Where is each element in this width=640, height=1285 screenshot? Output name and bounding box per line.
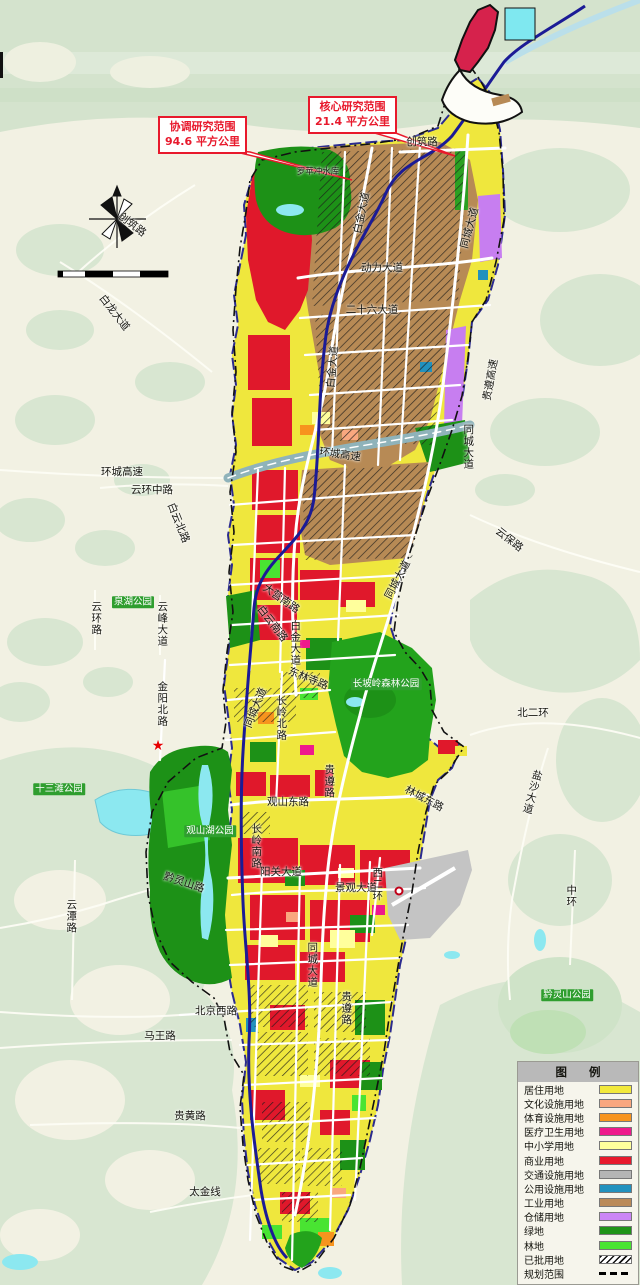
legend-item-label: 中小学用地 [524,1138,574,1153]
callout-line2: 94.6 平方公里 [165,135,240,150]
legend-item-label: 林地 [524,1238,544,1253]
legend-title: 图 例 [518,1062,638,1082]
legend-item-label: 工业用地 [524,1195,564,1210]
legend-item-swatch [599,1099,632,1108]
legend-item-label: 公用设施用地 [524,1181,584,1196]
callout-coordination-scope: 协调研究范围 94.6 平方公里 [158,116,247,154]
callout-line1: 协调研究范围 [165,120,240,135]
legend-item-swatch [599,1170,632,1179]
legend-row: 中小学用地 [518,1139,638,1153]
legend-row: 公用设施用地 [518,1181,638,1195]
legend-row: 已批用地 [518,1252,638,1266]
legend-item-label: 仓储用地 [524,1209,564,1224]
legend-row: 居住用地 [518,1082,638,1096]
callout-line1: 核心研究范围 [315,100,390,115]
legend-item-swatch [599,1113,632,1122]
legend-item-swatch [599,1156,632,1165]
legend-item-swatch [599,1085,632,1094]
legend-item-label: 文化设施用地 [524,1096,584,1111]
legend-item-swatch [599,1141,632,1150]
scale-bar [58,271,168,277]
legend-row: 规划范围 [518,1266,638,1280]
legend-item-label: 已批用地 [524,1252,564,1267]
legend-item-label: 医疗卫生用地 [524,1124,584,1139]
legend-item-swatch [599,1241,632,1250]
legend-row: 交通设施用地 [518,1167,638,1181]
legend-row: 医疗卫生用地 [518,1125,638,1139]
legend-item-swatch [599,1198,632,1207]
legend-item-label: 交通设施用地 [524,1167,584,1182]
train-station-icon [395,887,404,896]
legend-item-label: 体育设施用地 [524,1110,584,1125]
legend-item-label: 商业用地 [524,1153,564,1168]
legend-item-swatch [599,1127,632,1136]
callout-core-scope: 核心研究范围 21.4 平方公里 [308,96,397,134]
legend-item-label: 居住用地 [524,1082,564,1097]
legend-item-swatch [599,1255,632,1264]
legend-row: 工业用地 [518,1196,638,1210]
legend-item-swatch [599,1226,632,1235]
planning-map-page: { "map": { "callouts": [ {"line1": "协调研究… [0,0,640,1285]
legend-row: 商业用地 [518,1153,638,1167]
legend-item-swatch [599,1184,632,1193]
legend-item-swatch [599,1272,632,1276]
legend-row: 文化设施用地 [518,1096,638,1110]
legend-list: 居住用地文化设施用地体育设施用地医疗卫生用地中小学用地商业用地交通设施用地公用设… [518,1082,638,1281]
legend-row: 仓储用地 [518,1210,638,1224]
legend-panel: 图 例 居住用地文化设施用地体育设施用地医疗卫生用地中小学用地商业用地交通设施用… [517,1061,639,1285]
callout-line2: 21.4 平方公里 [315,115,390,130]
legend-row: 绿地 [518,1224,638,1238]
legend-row: 林地 [518,1238,638,1252]
legend-item-label: 规划范围 [524,1266,564,1281]
city-hall-star-icon: ★ [152,739,165,753]
legend-item-swatch [599,1212,632,1221]
legend-row: 体育设施用地 [518,1110,638,1124]
legend-item-label: 绿地 [524,1223,544,1238]
